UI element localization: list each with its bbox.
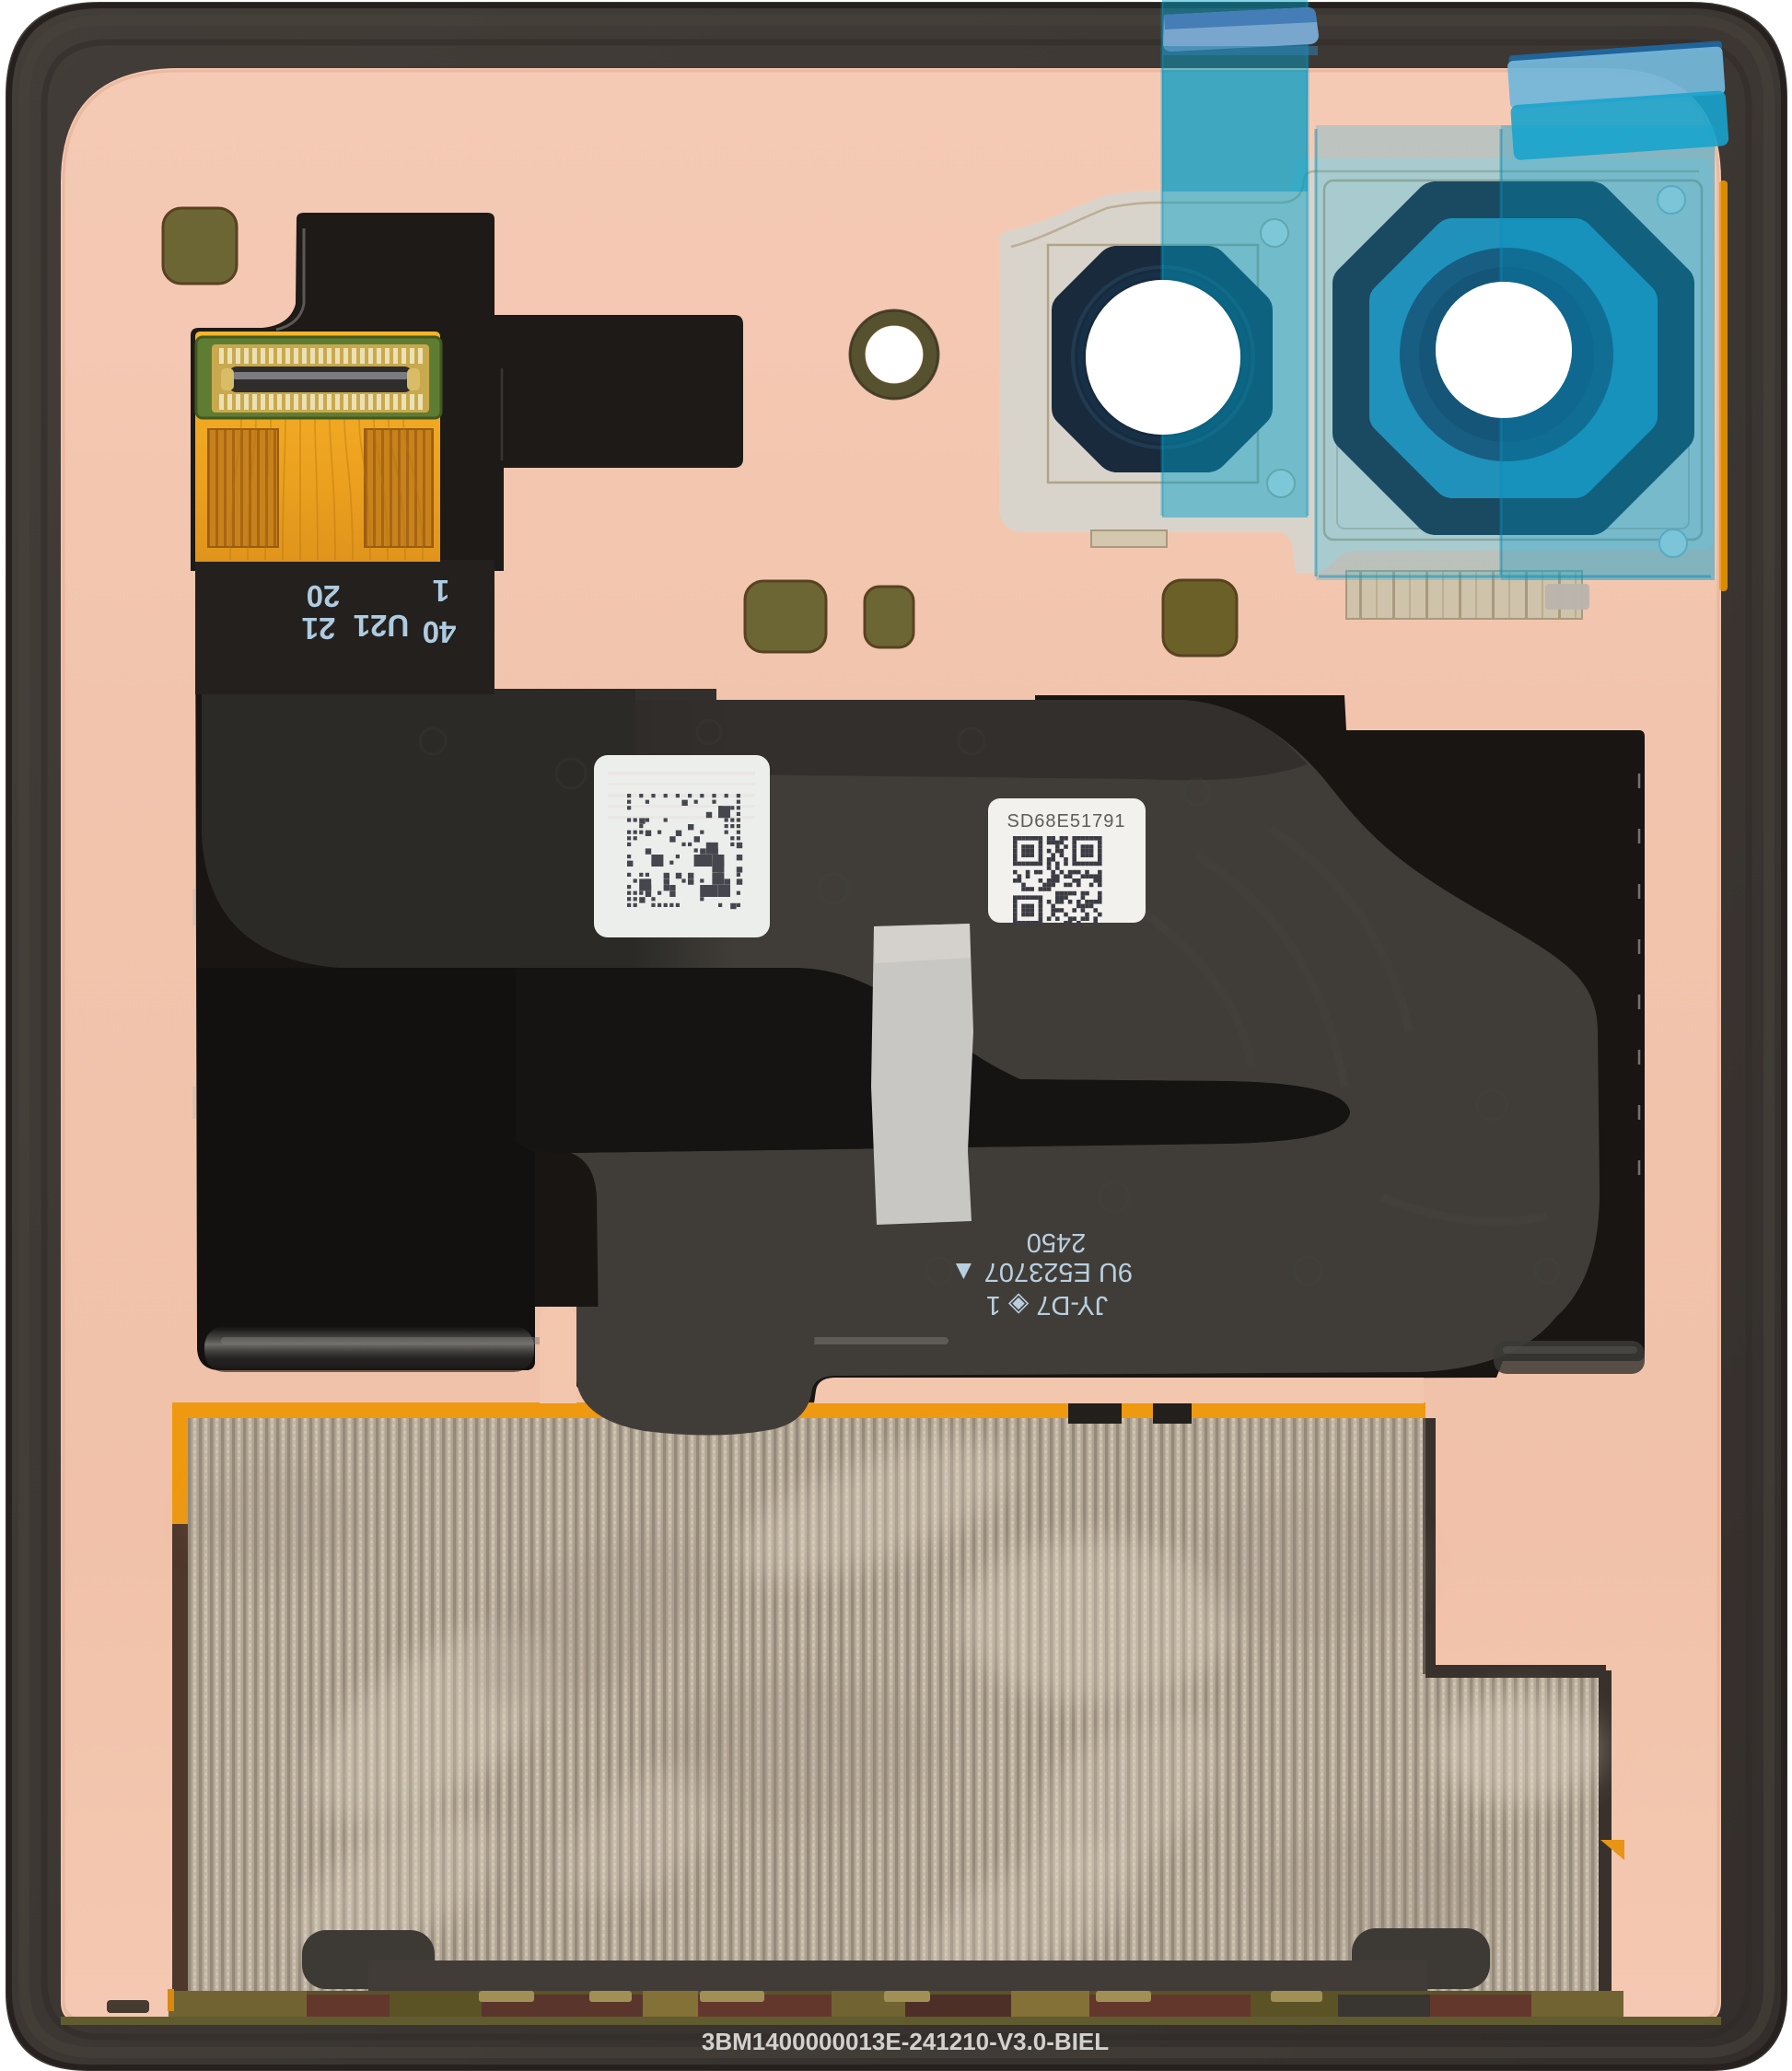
- svg-text:21: 21: [302, 611, 336, 646]
- svg-text:1: 1: [433, 574, 449, 608]
- svg-text:9U E523707 ▲: 9U E523707 ▲: [950, 1257, 1133, 1286]
- svg-text:2450: 2450: [1027, 1227, 1087, 1257]
- svg-text:3BM1400000013E-241210-V3.0-BIE: 3BM1400000013E-241210-V3.0-BIEL: [702, 2028, 1109, 2055]
- svg-text:40: 40: [423, 615, 457, 649]
- svg-text:U21: U21: [354, 609, 410, 643]
- svg-text:SD68E51791: SD68E51791: [1007, 811, 1126, 832]
- svg-text:20: 20: [307, 579, 341, 613]
- svg-text:JY-D7 ◈ 1: JY-D7 ◈ 1: [986, 1290, 1108, 1320]
